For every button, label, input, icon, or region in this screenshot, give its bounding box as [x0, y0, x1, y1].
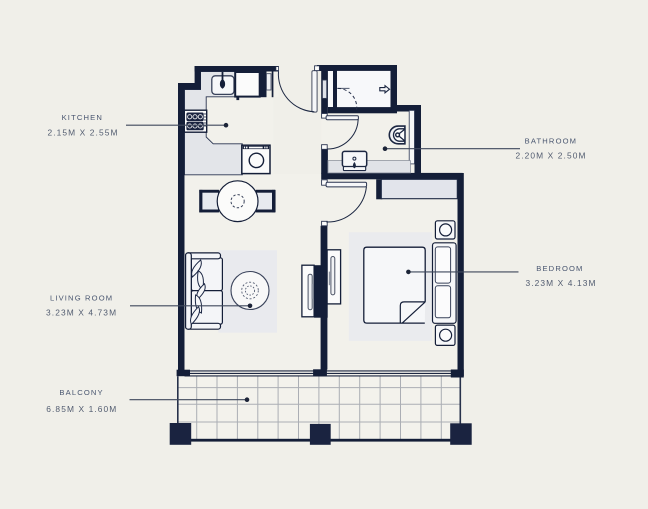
svg-text:2.20M X 2.50M: 2.20M X 2.50M [515, 151, 586, 161]
svg-text:3.23M X 4.13M: 3.23M X 4.13M [525, 278, 596, 288]
svg-text:BALCONY: BALCONY [59, 388, 103, 397]
svg-text:BEDROOM: BEDROOM [536, 264, 583, 273]
svg-text:KITCHEN: KITCHEN [62, 113, 103, 122]
svg-text:BATHROOM: BATHROOM [525, 136, 578, 145]
svg-text:3.23M X 4.73M: 3.23M X 4.73M [46, 308, 117, 318]
svg-text:LIVING ROOM: LIVING ROOM [50, 293, 113, 302]
svg-text:6.85M X 1.60M: 6.85M X 1.60M [46, 404, 117, 414]
svg-text:2.15M X 2.55M: 2.15M X 2.55M [47, 127, 118, 137]
